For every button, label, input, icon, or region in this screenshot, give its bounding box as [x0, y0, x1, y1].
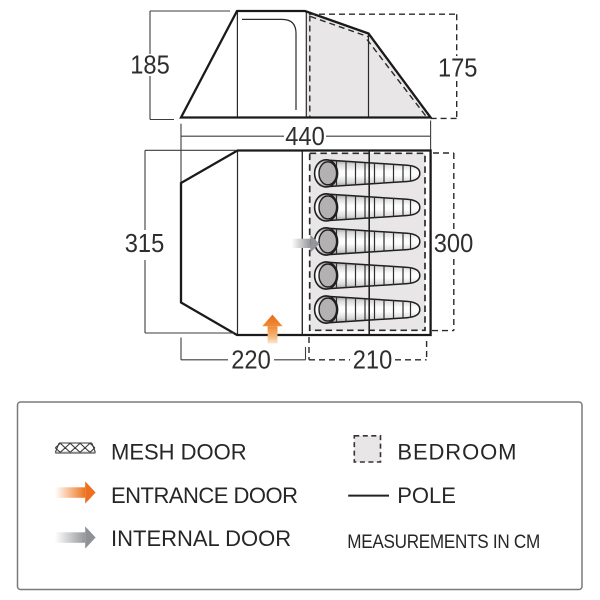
svg-text:ENTRANCE DOOR: ENTRANCE DOOR — [111, 483, 298, 508]
svg-text:BEDROOM: BEDROOM — [397, 439, 516, 464]
svg-text:210: 210 — [353, 345, 393, 375]
svg-text:185: 185 — [130, 50, 170, 80]
svg-text:INTERNAL DOOR: INTERNAL DOOR — [111, 526, 291, 551]
svg-text:MESH DOOR: MESH DOOR — [111, 439, 247, 464]
svg-text:175: 175 — [438, 53, 478, 83]
svg-text:300: 300 — [434, 228, 474, 258]
svg-text:POLE: POLE — [397, 483, 456, 508]
svg-text:220: 220 — [231, 345, 271, 375]
svg-text:440: 440 — [285, 121, 325, 151]
svg-text:315: 315 — [125, 228, 165, 258]
svg-text:MEASUREMENTS IN CM: MEASUREMENTS IN CM — [347, 531, 540, 552]
